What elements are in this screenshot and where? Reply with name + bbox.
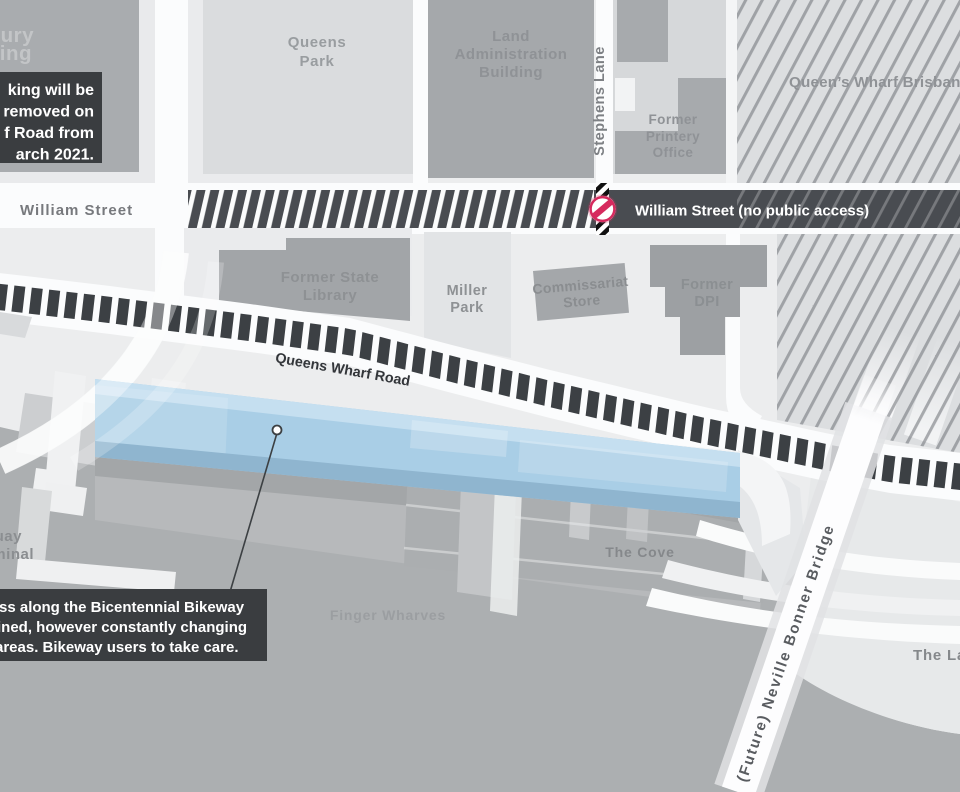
svg-text:William Street: William Street [20, 202, 133, 219]
svg-text:arch 2021.: arch 2021. [16, 147, 94, 164]
svg-text:Finger Wharves: Finger Wharves [330, 607, 446, 623]
svg-text:The Cove: The Cove [605, 544, 674, 560]
svg-text:Administration: Administration [455, 46, 568, 63]
svg-text:Printery: Printery [646, 129, 700, 144]
svg-text:f Road from: f Road from [4, 125, 94, 142]
svg-text:Building: Building [479, 64, 543, 81]
svg-text:Office: Office [653, 145, 694, 160]
svg-text:The Landing: The Landing [913, 647, 960, 664]
svg-text:Park: Park [450, 300, 484, 316]
svg-text:Land: Land [492, 28, 530, 45]
svg-text:Store: Store [563, 291, 602, 310]
svg-text:Library: Library [303, 287, 358, 304]
svg-text:Queen’s Wharf Brisbane: Queen’s Wharf Brisbane [789, 74, 960, 91]
svg-text:DPI: DPI [694, 294, 719, 310]
svg-text:Stephens Lane: Stephens Lane [592, 46, 608, 156]
svg-text:ss along the Bicentennial Bike: ss along the Bicentennial Bikeway [0, 599, 245, 616]
svg-text:areas. Bikeway users to take c: areas. Bikeway users to take care. [0, 639, 239, 656]
svg-text:Park: Park [300, 53, 335, 70]
svg-text:Building: Building [0, 42, 32, 65]
svg-text:William Street (no public acce: William Street (no public access) [635, 203, 869, 220]
svg-text:removed on: removed on [3, 104, 94, 121]
svg-text:Former: Former [681, 277, 733, 293]
svg-text:king will be: king will be [8, 82, 94, 99]
svg-text:North Quay: North Quay [0, 528, 22, 545]
svg-text:Ferry Terminal: Ferry Terminal [0, 546, 34, 563]
svg-text:Former State: Former State [281, 269, 380, 286]
svg-text:Miller: Miller [447, 283, 488, 299]
svg-text:Former: Former [649, 112, 698, 127]
svg-text:ined, however constantly chang: ined, however constantly changing [0, 619, 247, 636]
svg-text:Queens: Queens [288, 34, 347, 51]
